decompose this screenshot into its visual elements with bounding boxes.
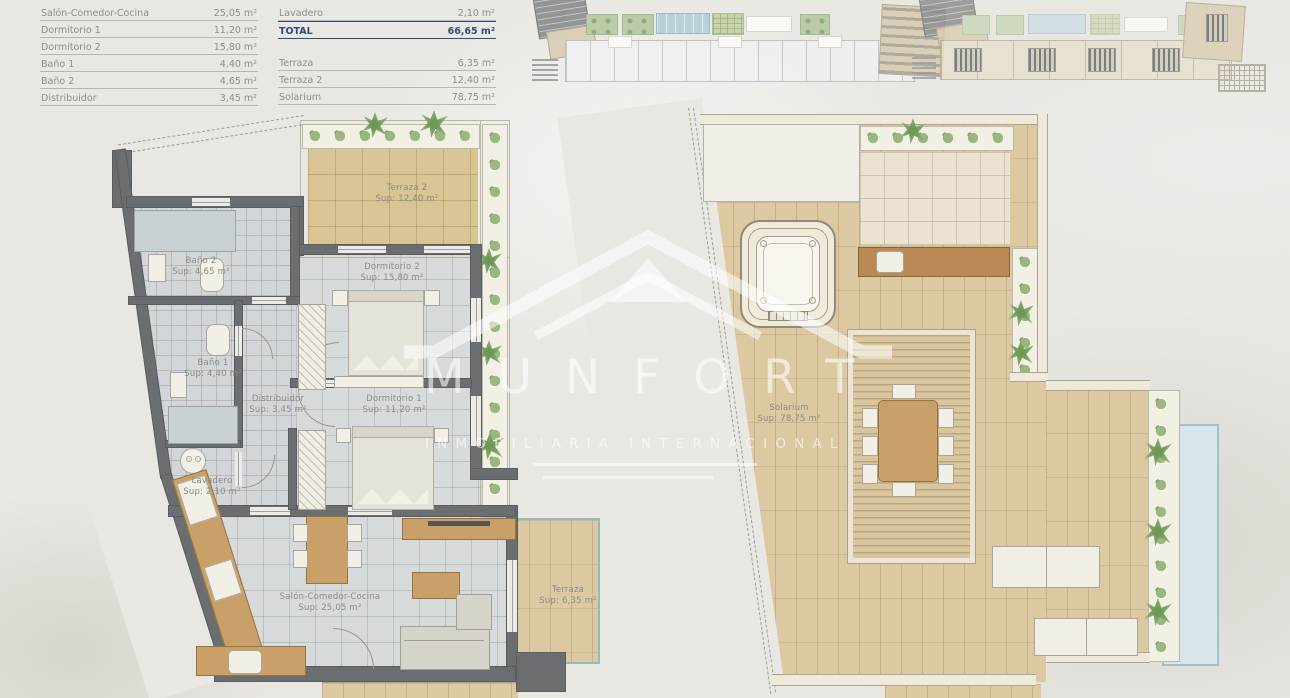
room-label: Salón-Comedor-Cocina [41, 8, 149, 19]
table-spacer [278, 39, 496, 54]
room-label: Terraza 2 [279, 75, 322, 86]
parapet-wall [1037, 114, 1048, 380]
room-label-terraza: Terraza Sup: 6,35 m² [539, 585, 596, 607]
room-label: Terraza [279, 58, 313, 69]
planter-hedge [482, 124, 508, 518]
room-label-distribuidor: Distribuidor Sup: 3,45 m² [249, 394, 306, 416]
room-sup: Sup: 11,20 m² [362, 405, 425, 416]
siteplan-garden [586, 14, 618, 35]
table-row: Terraza 6,35 m² [278, 54, 496, 71]
table-row: Lavadero 2,10 m² [278, 4, 496, 21]
kitchen-sink [228, 650, 262, 674]
siteplan-garden [800, 14, 830, 35]
washer-dial [195, 456, 201, 462]
table-row-total: TOTAL 66,65 m² [278, 21, 496, 39]
siteplan-roof [910, 0, 1290, 95]
parapet-wall [1010, 372, 1048, 382]
window [471, 298, 481, 342]
chair [892, 482, 916, 497]
room-area: 15,80 m² [214, 42, 257, 53]
bar-sink [876, 251, 904, 273]
wardrobe [298, 430, 326, 510]
room-label-solarium: Solarium Sup: 78,75 m² [757, 403, 820, 425]
chair [862, 464, 878, 484]
tv-screen [428, 521, 490, 526]
siteplan-stair-tower [818, 36, 842, 48]
chair [293, 524, 308, 542]
room-name: Solarium [757, 403, 820, 414]
siteplan-parking-grid [1218, 64, 1266, 92]
room-area: 2,10 m² [458, 8, 495, 19]
walkway [322, 682, 518, 698]
nightstand [424, 290, 440, 306]
jacuzzi-tub-inner [763, 243, 813, 305]
wardrobe [298, 304, 326, 390]
chair [347, 550, 362, 568]
room-area: 12,40 m² [452, 75, 495, 86]
lounger-deck [1046, 389, 1148, 652]
jacuzzi-jet [760, 240, 767, 247]
bed-blanket-fold [354, 355, 418, 370]
room-name: Salón-Comedor-Cocina [280, 592, 381, 603]
toilet [206, 324, 230, 356]
room-area: 78,75 m² [452, 92, 495, 103]
chair [862, 408, 878, 428]
floorplan-sheet: Salón-Comedor-Cocina 25,05 m² Dormitorio… [0, 0, 1290, 698]
sliding-door [424, 246, 470, 253]
shower [134, 210, 236, 252]
area-table-right-column: Lavadero 2,10 m² TOTAL 66,65 m² Terraza … [278, 4, 496, 106]
chair [862, 436, 878, 456]
siteplan-court [746, 16, 792, 32]
room-label: Dormitorio 2 [41, 42, 101, 53]
total-area: 66,65 m² [448, 26, 495, 37]
siteplan-garden [622, 14, 654, 35]
room-sup: Sup: 2,10 m² [183, 487, 240, 498]
siteplan-solar-panels [1088, 48, 1116, 72]
table-row: Dormitorio 2 15,80 m² [40, 38, 258, 55]
area-table: Salón-Comedor-Cocina 25,05 m² Dormitorio… [40, 4, 496, 106]
room-label-bano2: Baño 2 Sup: 4,65 m² [172, 256, 229, 278]
room-area: 4,65 m² [220, 76, 257, 87]
room-name: Dormitorio 1 [362, 394, 425, 405]
room-label-terraza2: Terraza 2 Sup: 12,40 m² [375, 183, 438, 205]
sink [148, 254, 166, 282]
room-name: Terraza [539, 585, 596, 596]
table-row: Dormitorio 1 11,20 m² [40, 21, 258, 38]
boundary-dashed-line [108, 115, 304, 147]
chair [938, 436, 954, 456]
room-sup: Sup: 4,65 m² [172, 267, 229, 278]
bed-headboard [353, 427, 433, 438]
siteplan-stairs [532, 56, 558, 81]
door-opening [235, 326, 242, 356]
entry-step [516, 652, 566, 692]
chair [892, 384, 916, 399]
table-row: Baño 2 4,65 m² [40, 72, 258, 89]
planter-hedge [1148, 390, 1180, 662]
siteplan-solar-panels [954, 48, 982, 72]
siteplan-pergola [1090, 14, 1120, 35]
dining-table [306, 516, 348, 584]
door-opening [252, 297, 286, 304]
neighbor-roof [703, 124, 860, 202]
boundary-dashed-line [108, 124, 302, 156]
jacuzzi-jet [809, 297, 816, 304]
room-sup: Sup: 4,40 m² [184, 369, 241, 380]
siteplan-stairs [912, 55, 936, 79]
room-area: 3,45 m² [220, 93, 257, 104]
table-row: Distribuidor 3,45 m² [40, 89, 258, 106]
chair [347, 524, 362, 542]
room-label: Lavadero [279, 8, 323, 19]
sliding-door [507, 560, 517, 632]
room-label-bano1: Baño 1 Sup: 4,40 m² [184, 358, 241, 380]
sofa-seam [404, 640, 484, 641]
room-label: Baño 1 [41, 59, 74, 70]
chair [938, 408, 954, 428]
sliding-door [338, 246, 386, 253]
nightstand [336, 428, 351, 443]
room-name: Distribuidor [249, 394, 306, 405]
room-name: Lavadero [183, 476, 240, 487]
solarium-floor-lower [885, 684, 1041, 698]
room-name: Baño 2 [172, 256, 229, 267]
upper-terrace-floor [860, 152, 1010, 245]
sofa-chaise [456, 594, 492, 630]
planter-hedge [860, 126, 1014, 151]
room-sup: Sup: 12,40 m² [375, 194, 438, 205]
window [192, 198, 230, 206]
room-area: 11,20 m² [214, 25, 257, 36]
siteplan-garden [962, 15, 990, 35]
room-label-lavadero: Lavadero Sup: 2,10 m² [183, 476, 240, 498]
room-label: Baño 2 [41, 76, 74, 87]
jacuzzi-jet [760, 297, 767, 304]
planter-hedge [302, 124, 480, 149]
siteplan-stair-tower [608, 36, 632, 48]
nightstand [332, 290, 348, 306]
coffee-table [412, 572, 460, 599]
siteplan-solar-panels [1028, 48, 1056, 72]
parapet-wall [1046, 380, 1150, 391]
door-opening [250, 507, 290, 515]
washer-dial [186, 456, 192, 462]
room-name: Dormitorio 2 [360, 262, 423, 273]
room-sup: Sup: 15,80 m² [360, 273, 423, 284]
room-label: Solarium [279, 92, 321, 103]
sun-loungers [992, 546, 1100, 588]
bed-blanket-fold [358, 489, 428, 504]
double-bed [352, 426, 434, 510]
room-sup: Sup: 25,05 m² [280, 603, 381, 614]
bed-headboard [349, 291, 423, 302]
siteplan-garden [996, 15, 1024, 35]
jacuzzi-jet [809, 240, 816, 247]
sofa [400, 626, 490, 670]
outdoor-dining-table [878, 400, 938, 482]
chair [938, 464, 954, 484]
partition-wall [290, 206, 300, 304]
room-area: 25,05 m² [214, 8, 257, 19]
parapet-wall [772, 674, 1036, 686]
room-label: Dormitorio 1 [41, 25, 101, 36]
room-name: Baño 1 [184, 358, 241, 369]
room-label-dormitorio2: Dormitorio 2 Sup: 15,80 m² [360, 262, 423, 284]
room-label: Distribuidor [41, 93, 97, 104]
siteplan-court [1124, 17, 1168, 32]
room-name: Terraza 2 [375, 183, 438, 194]
table-row: Solarium 78,75 m² [278, 88, 496, 105]
chair [293, 550, 308, 568]
table-row: Terraza 2 12,40 m² [278, 71, 496, 88]
nightstand [434, 428, 449, 443]
sun-loungers [1034, 618, 1138, 656]
room-sup: Sup: 6,35 m² [539, 596, 596, 607]
cooktop [204, 559, 242, 602]
jacuzzi [740, 220, 836, 328]
siteplan-pergola [712, 13, 744, 35]
room-sup: Sup: 78,75 m² [757, 414, 820, 425]
bench [334, 376, 424, 388]
total-label: TOTAL [279, 26, 313, 37]
siteplan-solar-panels [1206, 14, 1228, 42]
room-sup: Sup: 3,45 m² [249, 405, 306, 416]
room-label-dormitorio1: Dormitorio 1 Sup: 11,20 m² [362, 394, 425, 416]
siteplan-pool [1028, 14, 1086, 34]
shower [168, 406, 238, 444]
room-area: 4,40 m² [220, 59, 257, 70]
area-table-left-column: Salón-Comedor-Cocina 25,05 m² Dormitorio… [40, 4, 258, 106]
partition-wall [288, 428, 297, 510]
siteplan-stair-tower [718, 36, 742, 48]
jacuzzi-controls [768, 311, 808, 321]
room-area: 6,35 m² [458, 58, 495, 69]
window [471, 396, 481, 446]
room-label-salon: Salón-Comedor-Cocina Sup: 25,05 m² [280, 592, 381, 614]
siteplan-pool [656, 13, 710, 34]
siteplan-ground [530, 0, 955, 95]
table-row: Baño 1 4,40 m² [40, 55, 258, 72]
double-bed [348, 290, 424, 376]
table-row: Salón-Comedor-Cocina 25,05 m² [40, 4, 258, 21]
siteplan-solar-panels [1152, 48, 1180, 72]
wall-segment [470, 468, 518, 480]
